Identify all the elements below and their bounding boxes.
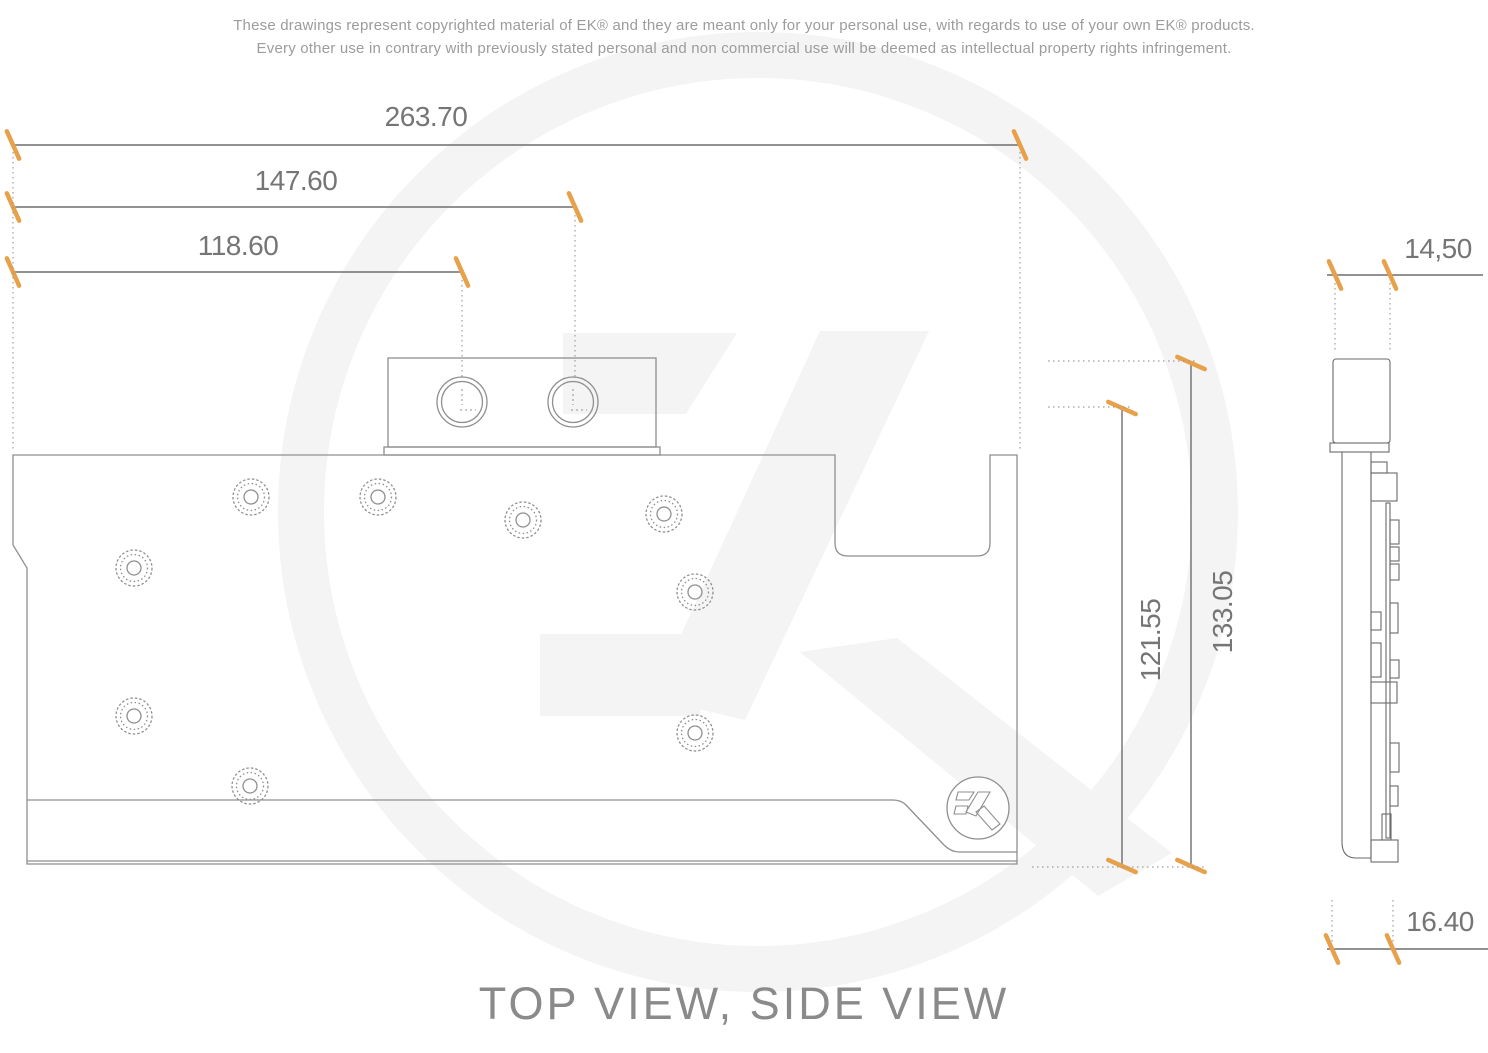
- side-pcb: [1386, 503, 1390, 838]
- watermark-bar-top-left: [563, 333, 737, 414]
- ek-logo-watermark: [301, 55, 1215, 969]
- watermark-bar-mid-left: [540, 634, 700, 716]
- ek-logo-badge: [947, 777, 1009, 839]
- disclaimer-line-1: These drawings represent copyrighted mat…: [0, 14, 1488, 37]
- port-left: [437, 377, 487, 427]
- view-title: TOP VIEW, SIDE VIEW: [0, 978, 1488, 1030]
- side-block-slab: [1342, 452, 1371, 858]
- screw: [505, 502, 541, 538]
- dim-bottom-thickness: 16.40: [1406, 906, 1474, 938]
- screw: [646, 496, 682, 532]
- side-terminal: [1333, 359, 1390, 443]
- dim-top-thickness: 14,50: [1404, 233, 1472, 265]
- disclaimer-line-2: Every other use in contrary with previou…: [0, 37, 1488, 60]
- screw: [116, 550, 152, 586]
- screw: [360, 479, 396, 515]
- dim-port2-offset: 147.60: [255, 165, 338, 197]
- side-terminal-flange: [1330, 443, 1389, 452]
- screw: [232, 768, 268, 804]
- dim-total-width: 263.70: [385, 101, 468, 133]
- screw: [233, 479, 269, 515]
- screw: [116, 698, 152, 734]
- extension-leaders: [13, 152, 1393, 944]
- dim-pcb-height: 121.55: [1135, 599, 1167, 682]
- side-bottom-bracket: [1371, 840, 1398, 862]
- terminal-lip: [384, 447, 660, 455]
- dim-total-height: 133.05: [1207, 571, 1239, 654]
- dim-port1-offset: 118.60: [198, 230, 279, 262]
- shroud-band-line: [27, 800, 1017, 852]
- screw: [677, 715, 713, 751]
- side-view-drawing: [1330, 359, 1399, 862]
- technical-drawing-canvas: [0, 0, 1488, 1053]
- copyright-disclaimer: These drawings represent copyrighted mat…: [0, 14, 1488, 60]
